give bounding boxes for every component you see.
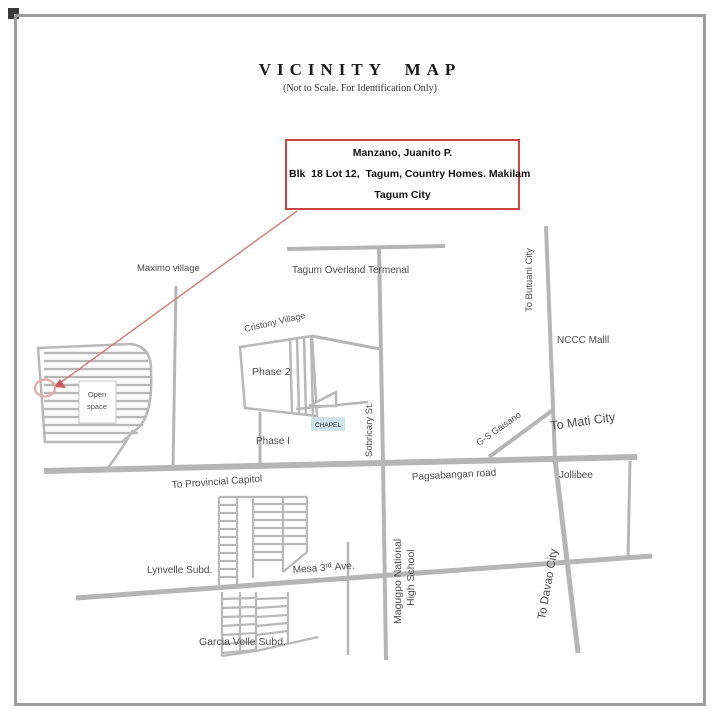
label-open-space-1: Open — [88, 390, 106, 399]
label-magugpo-school-2: High School — [405, 549, 417, 606]
phase2-strips — [290, 336, 313, 415]
label-to-provincial-capitol: To Provincial Capitol — [171, 474, 262, 491]
label-sobricary-st: Sobricary St. — [364, 403, 375, 457]
label-pagsabangan-road: Pagsabangan road — [412, 468, 497, 483]
label-open-space-2: space — [87, 402, 107, 411]
garcia-rungs-right — [256, 598, 288, 635]
map-canvas: Open space CHAPEL — [0, 0, 720, 720]
label-garcia-velle-subd: Garcia Velle Subd. — [199, 636, 286, 648]
label-nccc-mall: NCCC Malll — [557, 335, 609, 346]
label-to-davao-city: To Davao City — [536, 548, 560, 621]
label-tagum-overland-terminal: Tagum Overland Termenal — [292, 265, 409, 276]
label-cristony-village: Cristony Village — [243, 310, 306, 334]
lynvelle-rungs-right — [253, 504, 283, 560]
vicinity-map-page: VICINITY MAP (Not to Scale. For Identifi… — [0, 0, 720, 720]
label-chapel: CHAPEL — [315, 422, 341, 429]
road-terminal — [287, 246, 445, 249]
road-cristony-east — [312, 336, 380, 349]
mesa-ave-text: Mesa 3 — [292, 563, 326, 576]
open-space-tail — [107, 430, 133, 469]
mesa-ave-suffix: Ave. — [334, 561, 355, 573]
open-space-block: Open space — [38, 344, 151, 469]
road-mesa-ave — [76, 556, 652, 598]
label-lynvelle-subd: Lynvelle Subd. — [147, 565, 212, 576]
label-phase-1: Phase I — [256, 436, 290, 447]
label-magugpo-school-1: Magugpo National — [392, 539, 404, 624]
road-jollibee-side — [628, 461, 630, 557]
label-mesa-3rd-ave: Mesa 3rdAve. — [292, 561, 354, 576]
chapel-marker: CHAPEL — [309, 392, 345, 431]
label-to-mati-city: To Mati City — [549, 410, 616, 433]
label-jollibee: Jollibee — [559, 470, 593, 481]
label-phase-2: Phase 2 — [252, 366, 291, 378]
label-maximo-village: Maximo village — [137, 263, 200, 274]
red-leader-line — [60, 211, 297, 383]
label-to-butuan-city: To Butuani City — [524, 248, 535, 312]
roads — [44, 226, 652, 660]
road-main-highway — [44, 457, 637, 471]
road-sobricary-st — [379, 248, 386, 660]
road-maximo — [173, 286, 176, 469]
lynvelle-rungs-wing — [283, 504, 307, 544]
label-gs-gaisano: G-S Gaisano — [474, 410, 522, 448]
mesa-ave-ordinal: rd — [325, 562, 332, 569]
lynvelle-rungs-left — [219, 505, 237, 577]
